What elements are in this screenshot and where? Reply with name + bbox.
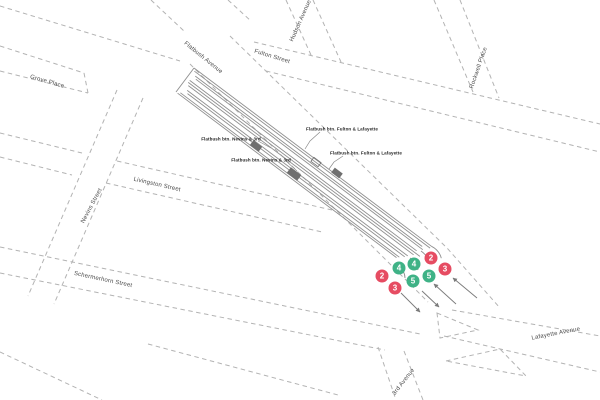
arrow-northwest-2 xyxy=(453,278,477,298)
structure-track-ne-2 xyxy=(196,79,423,250)
route-bullet-3-west: 3 xyxy=(389,282,402,295)
map-canvas xyxy=(0,0,600,400)
street-line-livingston-south-west xyxy=(0,157,72,175)
street-line-livingston-north-west xyxy=(0,133,82,153)
arrow-southeast-1 xyxy=(401,293,420,312)
street-line-block-southwest-b xyxy=(148,344,338,395)
street-line-schermerhorn-north xyxy=(0,247,420,334)
street-line-rockwell-west xyxy=(434,0,473,92)
route-bullet-2-west: 2 xyxy=(376,270,389,283)
annotation-flatbush-nevins-3rd-1: Flatbush btn. Nevins & 3rd xyxy=(201,137,261,142)
route-bullet-2-east: 2 xyxy=(425,252,438,265)
stair-box-4 xyxy=(331,168,343,179)
street-line-flatbush-east xyxy=(230,36,500,308)
structure-line-mid-2 xyxy=(188,82,420,256)
traffic-island-north xyxy=(437,313,478,338)
street-map: Grove Place Fulton Street Flatbush Avenu… xyxy=(0,0,600,400)
street-line-flatbush-nw-east xyxy=(228,0,251,21)
route-bullet-5-west: 5 xyxy=(407,275,420,288)
leader-fulton-lafayette-1 xyxy=(305,132,320,149)
street-line-schermerhorn-south xyxy=(0,273,385,350)
structure-wall-sw-outer xyxy=(178,93,397,257)
route-bullet-4-west: 4 xyxy=(393,262,406,275)
street-line-fulton-south xyxy=(266,71,600,152)
annotation-flatbush-nevins-3rd-2: Flatbush btn. Nevins & 3rd xyxy=(231,158,291,163)
structure-wall-ne-outer xyxy=(194,68,431,246)
street-line-nevins-west xyxy=(28,90,117,296)
street-line-rockwell-east xyxy=(460,0,499,98)
structure-line-mid-1 xyxy=(190,80,417,250)
streets-layer xyxy=(0,0,600,400)
arrow-northwest-1 xyxy=(434,284,456,304)
leader-fulton-lafayette-2 xyxy=(329,156,343,169)
street-line-block-southwest-a xyxy=(0,352,102,400)
street-line-nevins-east xyxy=(54,98,143,304)
street-line-flatbush-nw-west xyxy=(151,0,184,31)
subway-structure xyxy=(176,68,441,278)
street-line-hudson-east xyxy=(313,0,341,62)
street-line-fulton-north xyxy=(254,42,600,124)
route-bullet-5-east: 5 xyxy=(423,270,436,283)
structure-line-mid-3 xyxy=(188,86,413,255)
street-line-grove-top xyxy=(0,46,84,73)
street-line-north-block xyxy=(0,6,180,61)
annotation-flatbush-fulton-lafayette-1: Flatbush btn. Fulton & Lafayette xyxy=(306,127,378,132)
traffic-island-south xyxy=(446,349,526,376)
route-bullet-4-east: 4 xyxy=(408,258,421,271)
route-bullet-3-east: 3 xyxy=(439,263,452,276)
street-line-livingston-south xyxy=(106,183,322,232)
structure-track-ne-1 xyxy=(195,76,422,246)
street-line-grove-endcap xyxy=(84,73,88,93)
annotation-flatbush-fulton-lafayette-2: Flatbush btn. Fulton & Lafayette xyxy=(330,151,402,156)
street-line-lafayette-south xyxy=(444,336,600,372)
